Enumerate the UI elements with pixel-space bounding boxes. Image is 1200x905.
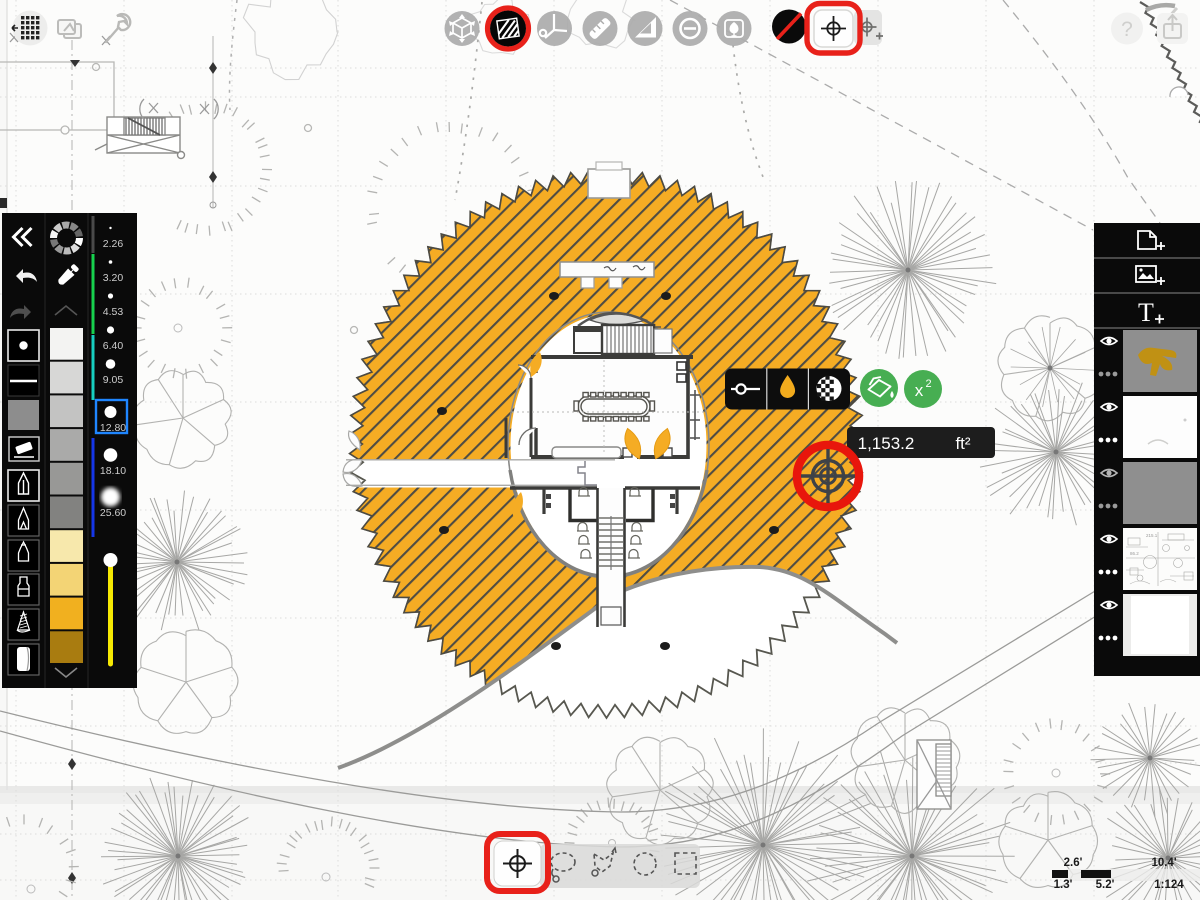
svg-text:1.3': 1.3' bbox=[1054, 879, 1073, 891]
svg-text:215.1: 215.1 bbox=[1146, 533, 1158, 538]
svg-text:?: ? bbox=[1121, 18, 1133, 41]
svg-text:25.60: 25.60 bbox=[100, 507, 126, 519]
svg-text:T: T bbox=[1138, 298, 1154, 327]
svg-text:86.2: 86.2 bbox=[1130, 551, 1139, 556]
svg-text:2.6': 2.6' bbox=[1064, 857, 1083, 869]
svg-text:2: 2 bbox=[925, 378, 931, 390]
svg-text:9.05: 9.05 bbox=[103, 374, 124, 386]
svg-text:1:124: 1:124 bbox=[1154, 879, 1184, 891]
svg-text:6.40: 6.40 bbox=[103, 340, 124, 352]
svg-text:18.10: 18.10 bbox=[100, 465, 126, 477]
svg-text:2.26: 2.26 bbox=[103, 238, 124, 250]
svg-text:3.20: 3.20 bbox=[103, 272, 124, 284]
svg-text:ft²: ft² bbox=[955, 434, 970, 453]
svg-text:10.4': 10.4' bbox=[1151, 857, 1176, 869]
svg-text:1,153.2: 1,153.2 bbox=[858, 434, 915, 453]
svg-text:x: x bbox=[915, 381, 924, 400]
svg-text:4.53: 4.53 bbox=[103, 306, 124, 318]
svg-text:5.2': 5.2' bbox=[1096, 879, 1115, 891]
